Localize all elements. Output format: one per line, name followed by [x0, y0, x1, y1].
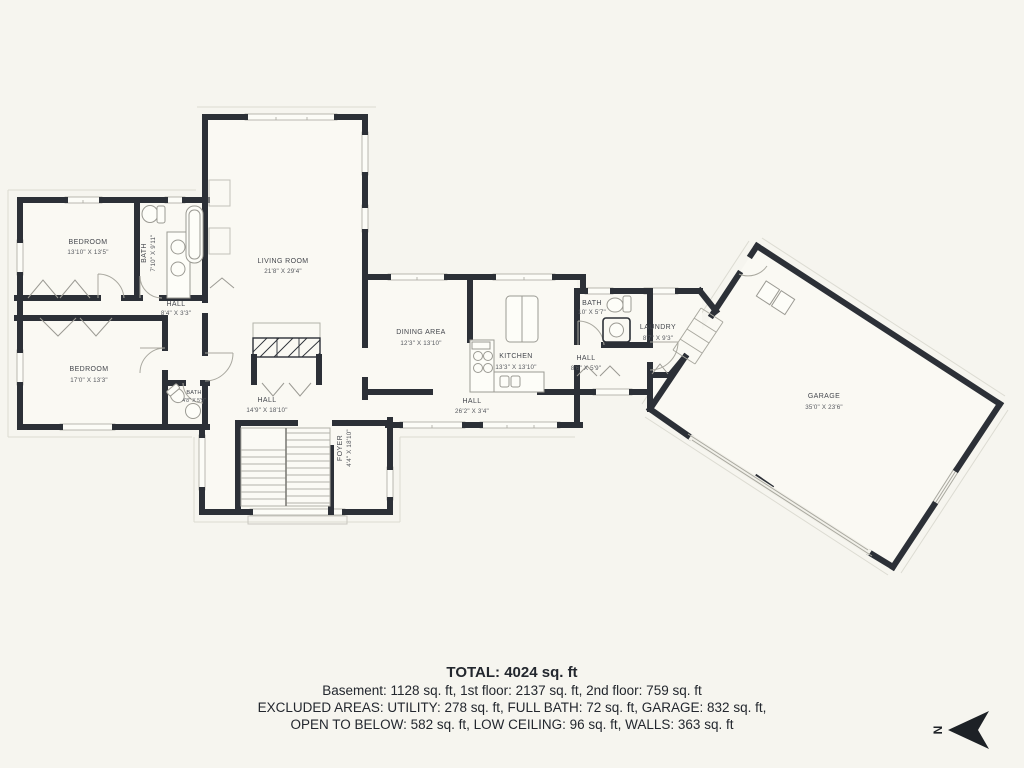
label-garage: GARAGE — [808, 393, 840, 400]
label-hall-center-dims: 14'9" X 18'10" — [246, 407, 287, 414]
porch-step — [248, 516, 347, 524]
label-hall-bedrooms: HALL — [166, 301, 185, 308]
label-bath-small: BATH — [186, 390, 201, 396]
label-bath-main-dims: 10' X 5'7" — [578, 309, 606, 316]
label-bedroom-lower: BEDROOM — [70, 366, 109, 373]
floor-plan-drawing: LIVING ROOM 21'8" X 29'4" BEDROOM 13'10"… — [0, 0, 1024, 768]
label-bath-upper-dims: 7'10" X 9'11" — [150, 234, 157, 271]
label-dining-dims: 12'3" X 13'10" — [400, 340, 441, 347]
label-bath-upper: BATH — [141, 243, 148, 263]
label-living-room: LIVING ROOM — [257, 258, 308, 265]
label-laundry: LAUNDRY — [640, 324, 676, 331]
label-hall-long-dims: 26'2" X 3'4" — [455, 408, 489, 415]
label-hall-long: HALL — [462, 398, 481, 405]
label-bedroom-upper: BEDROOM — [69, 239, 108, 246]
label-hall-center: HALL — [257, 397, 276, 404]
label-foyer-dims: 4'4" X 18'10" — [346, 429, 353, 467]
label-hall-rear: HALL — [576, 355, 595, 362]
label-hall-rear-dims: 8'6" X 5'9" — [571, 365, 601, 372]
summary-total: TOTAL: 4024 sq. ft — [0, 664, 1024, 682]
label-foyer: FOYER — [337, 435, 344, 461]
label-bedroom-upper-dims: 13'10" X 13'5" — [67, 249, 108, 256]
label-kitchen: KITCHEN — [499, 353, 533, 360]
label-living-room-dims: 21'8" X 29'4" — [264, 268, 302, 275]
floor-plan-page: LIVING ROOM 21'8" X 29'4" BEDROOM 13'10"… — [0, 0, 1024, 768]
label-hall-bedrooms-dims: 8'4" X 3'3" — [161, 310, 191, 317]
area-summary: TOTAL: 4024 sq. ft Basement: 1128 sq. ft… — [0, 664, 1024, 733]
label-laundry-dims: 8'7" X 9'3" — [643, 335, 673, 342]
summary-excluded-1: EXCLUDED AREAS: UTILITY: 278 sq. ft, FUL… — [0, 699, 1024, 716]
label-bath-main: BATH — [582, 300, 602, 307]
label-bath-small-dims: 4'8" X 5'9" — [182, 398, 206, 404]
label-bedroom-lower-dims: 17'0" X 13'3" — [70, 377, 108, 384]
label-garage-dims: 35'0" X 23'6" — [805, 404, 843, 411]
label-kitchen-dims: 13'3" X 13'10" — [495, 364, 536, 371]
label-dining: DINING AREA — [396, 329, 446, 336]
staircase — [241, 428, 330, 506]
summary-excluded-2: OPEN TO BELOW: 582 sq. ft, LOW CEILING: … — [0, 716, 1024, 733]
summary-floors: Basement: 1128 sq. ft, 1st floor: 2137 s… — [0, 682, 1024, 699]
